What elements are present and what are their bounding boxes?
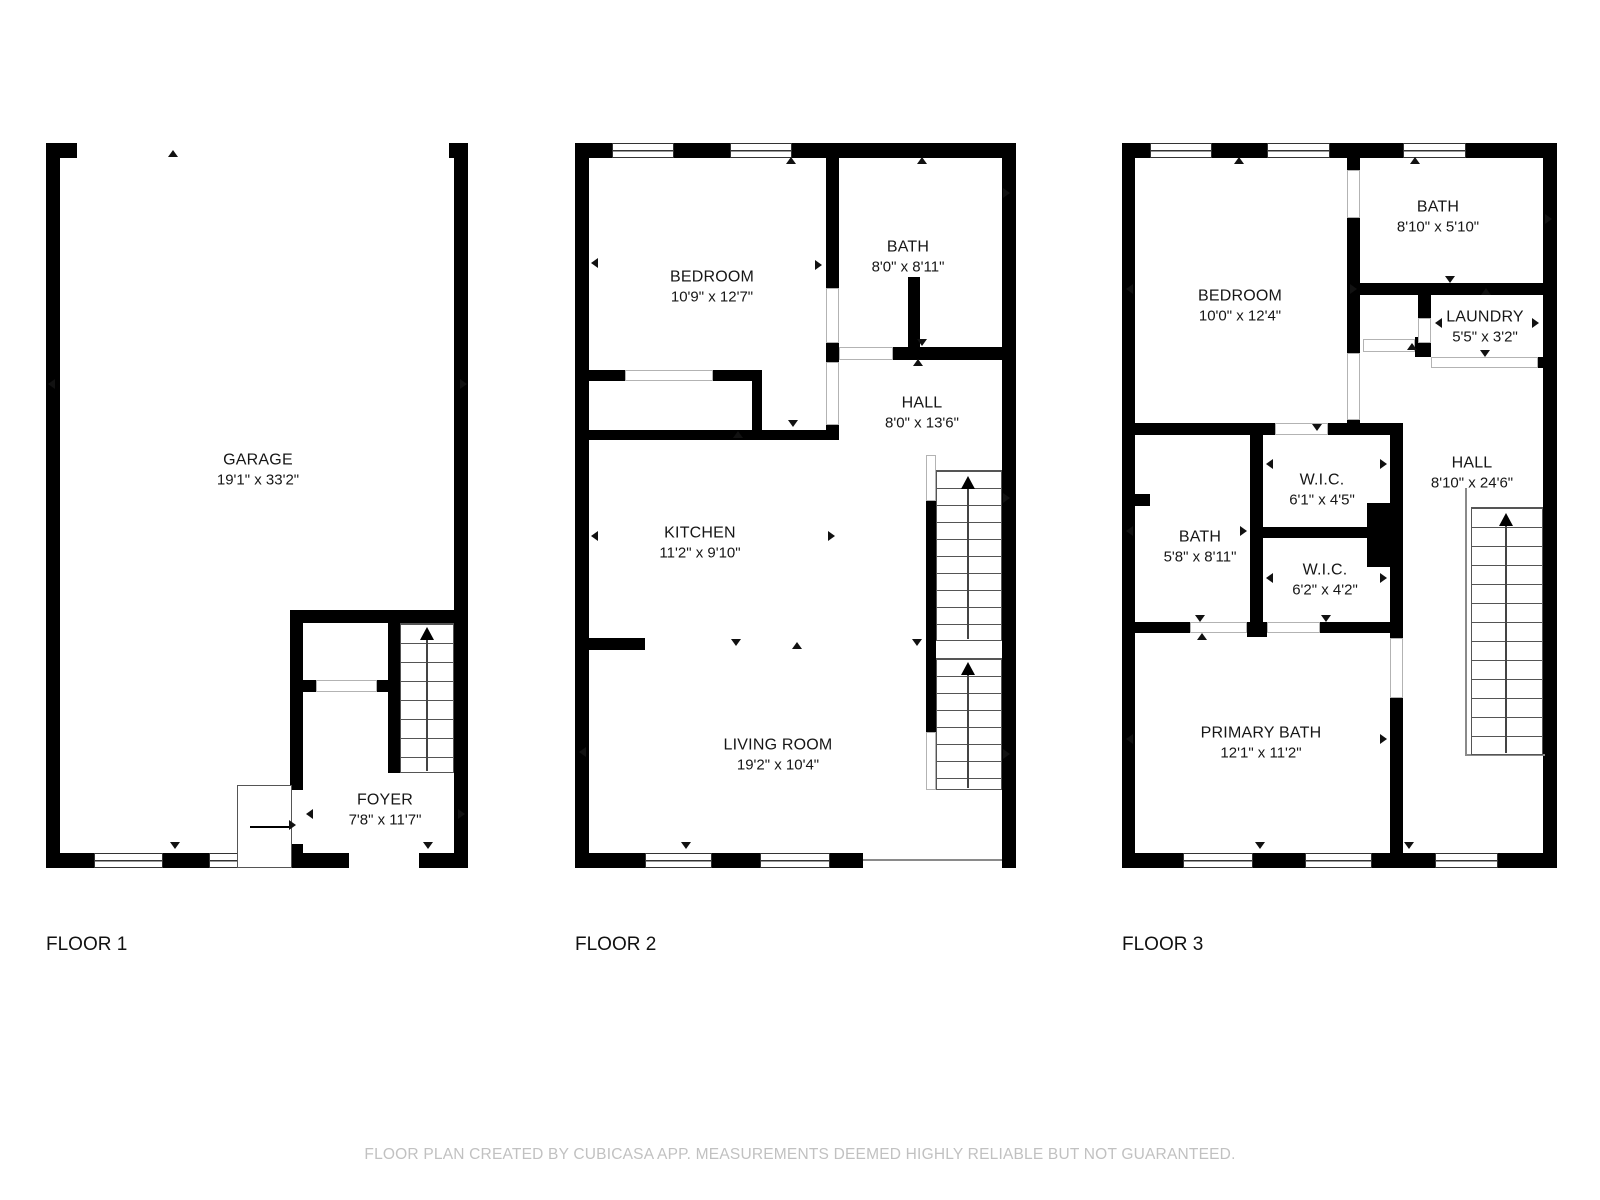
floor-3-label: FLOOR 3 xyxy=(1122,934,1203,956)
wall xyxy=(712,853,760,868)
measure-arrow xyxy=(1410,157,1420,164)
wall xyxy=(449,143,468,158)
measure-arrow xyxy=(1404,842,1414,849)
staircase-center-line xyxy=(426,637,428,771)
room-dims: 11'2" x 9'10" xyxy=(659,545,740,562)
measure-arrow xyxy=(170,842,180,849)
wall xyxy=(1122,143,1150,158)
staircase-center-line xyxy=(967,486,969,639)
wall xyxy=(1390,698,1403,853)
door-opening xyxy=(826,362,839,425)
measure-arrow xyxy=(1445,276,1455,283)
wall xyxy=(1320,622,1403,633)
wall xyxy=(46,853,94,868)
window xyxy=(612,143,674,158)
door-opening xyxy=(316,680,377,692)
room-label-foyer: FOYER7'8" x 11'7" xyxy=(349,792,422,829)
room-name: HALL xyxy=(1431,455,1513,473)
room-label-living-room: LIVING ROOM19'2" x 10'4" xyxy=(724,737,833,774)
staircase-up-arrow xyxy=(961,662,975,675)
door-opening xyxy=(1267,622,1320,633)
measure-arrow xyxy=(1003,749,1010,759)
measure-arrow xyxy=(1545,214,1552,224)
door-opening xyxy=(1347,170,1360,218)
measure-arrow xyxy=(1197,633,1207,640)
measure-arrow xyxy=(917,339,927,346)
window xyxy=(645,853,712,868)
wall xyxy=(752,381,762,430)
wall xyxy=(303,680,316,692)
room-label-bath-f3: BATH5'8" x 8'11" xyxy=(1164,529,1237,566)
room-dims: 10'9" x 12'7" xyxy=(670,289,754,306)
room-name: GARAGE xyxy=(217,452,299,470)
door-opening xyxy=(625,370,713,381)
window xyxy=(1150,143,1212,158)
room-dims: 5'5" x 3'2" xyxy=(1446,329,1524,346)
wall xyxy=(1253,853,1305,868)
staircase-center-line xyxy=(1505,523,1507,753)
measure-arrow xyxy=(423,842,433,849)
wall xyxy=(575,853,645,868)
staircase-treads xyxy=(936,470,1002,641)
room-dims: 6'1" x 4'5" xyxy=(1289,492,1355,509)
measure-arrow xyxy=(828,531,835,541)
wall xyxy=(1135,494,1150,506)
room-dims: 8'0" x 13'6" xyxy=(885,415,959,432)
staircase-up-arrow xyxy=(1499,513,1513,526)
wall xyxy=(1263,527,1367,538)
room-label-bedroom-f2: BEDROOM10'9" x 12'7" xyxy=(670,269,754,306)
wall xyxy=(1543,143,1557,868)
wall xyxy=(163,853,209,868)
measure-arrow xyxy=(1480,350,1490,357)
window xyxy=(730,143,792,158)
wall xyxy=(290,610,468,623)
wall xyxy=(1372,853,1435,868)
wall xyxy=(1002,143,1016,868)
floor-plan-canvas: GARAGE19'1" x 33'2" FOYER7'8" x 11'7" BE… xyxy=(0,0,1600,1200)
wall xyxy=(713,370,762,381)
measure-arrow xyxy=(1380,459,1387,469)
door-opening xyxy=(926,732,936,790)
room-label-hall-f3: HALL8'10" x 24'6" xyxy=(1431,455,1513,492)
measure-arrow xyxy=(306,809,313,819)
measure-arrow xyxy=(591,258,598,268)
wall xyxy=(926,500,936,733)
window xyxy=(760,853,830,868)
room-dims: 19'2" x 10'4" xyxy=(724,757,833,774)
wall xyxy=(1328,423,1403,435)
measure-arrow xyxy=(1380,573,1387,583)
door-opening xyxy=(1390,638,1403,698)
wall xyxy=(1122,622,1190,633)
room-name: FOYER xyxy=(349,792,422,810)
measure-arrow xyxy=(1240,526,1247,536)
staircase-treads xyxy=(936,658,1002,790)
measure-arrow xyxy=(460,379,467,389)
measure-arrow xyxy=(1195,615,1205,622)
wall xyxy=(1122,423,1275,435)
room-name: BEDROOM xyxy=(1198,288,1282,306)
room-label-kitchen: KITCHEN11'2" x 9'10" xyxy=(659,525,740,562)
measure-arrow xyxy=(1407,343,1417,350)
measure-arrow xyxy=(1126,734,1133,744)
measure-arrow xyxy=(733,431,743,438)
wall xyxy=(1347,337,1360,353)
measure-arrow xyxy=(1350,284,1357,294)
wall xyxy=(589,370,625,381)
wall xyxy=(1122,853,1183,868)
measure-arrow xyxy=(579,747,586,757)
wall xyxy=(1367,503,1403,567)
measure-arrow xyxy=(1266,573,1273,583)
wall xyxy=(1538,357,1548,368)
wall xyxy=(1418,295,1431,318)
room-label-bedroom-f3: BEDROOM10'0" x 12'4" xyxy=(1198,288,1282,325)
thin-line xyxy=(1465,488,1467,756)
window xyxy=(94,853,163,868)
measure-arrow xyxy=(792,642,802,649)
floor-2-label: FLOOR 2 xyxy=(575,934,656,956)
wall xyxy=(1330,143,1403,158)
room-label-garage: GARAGE19'1" x 33'2" xyxy=(217,452,299,489)
measure-arrow xyxy=(1312,424,1322,431)
wall xyxy=(589,430,839,440)
wall xyxy=(454,143,468,868)
staircase-up-arrow xyxy=(961,476,975,489)
wall xyxy=(1250,435,1263,633)
window xyxy=(1435,853,1498,868)
wall xyxy=(792,143,1002,158)
wall xyxy=(1498,853,1557,868)
wall xyxy=(1466,143,1557,158)
wall xyxy=(893,347,1002,360)
room-dims: 10'0" x 12'4" xyxy=(1198,308,1282,325)
wall xyxy=(826,343,839,362)
wall xyxy=(1212,143,1267,158)
window xyxy=(1305,853,1372,868)
door-opening xyxy=(1431,357,1538,368)
room-label-laundry: LAUNDRY5'5" x 3'2" xyxy=(1446,309,1524,346)
room-name: BEDROOM xyxy=(670,269,754,287)
entry-arrow-head xyxy=(289,820,296,830)
door-opening xyxy=(926,455,936,501)
disclaimer-text: FLOOR PLAN CREATED BY CUBICASA APP. MEAS… xyxy=(24,1146,1576,1164)
room-dims: 8'10" x 5'10" xyxy=(1397,219,1479,236)
measure-arrow xyxy=(912,639,922,646)
door-opening xyxy=(1347,353,1360,420)
room-name: PRIMARY BATH xyxy=(1201,725,1322,743)
room-dims: 8'10" x 24'6" xyxy=(1431,475,1513,492)
wall xyxy=(1247,622,1267,637)
room-name: W.I.C. xyxy=(1289,472,1355,490)
room-name: LIVING ROOM xyxy=(724,737,833,755)
wall xyxy=(830,853,863,868)
room-dims: 7'8" x 11'7" xyxy=(349,812,422,829)
measure-arrow xyxy=(48,379,55,389)
measure-arrow xyxy=(1234,157,1244,164)
wall xyxy=(388,623,400,773)
window xyxy=(1183,853,1253,868)
door-opening xyxy=(839,347,893,360)
measure-arrow xyxy=(1380,734,1387,744)
staircase-center-line xyxy=(967,672,969,788)
floor-1-label: FLOOR 1 xyxy=(46,934,127,956)
staircase-treads xyxy=(1471,507,1543,755)
wall xyxy=(377,680,393,692)
window xyxy=(1403,143,1466,158)
room-label-bath-f2: BATH8'0" x 8'11" xyxy=(872,239,945,276)
room-name: BATH xyxy=(872,239,945,257)
measure-arrow xyxy=(1321,615,1331,622)
room-label-primary-bath: PRIMARY BATH12'1" x 11'2" xyxy=(1201,725,1322,762)
wall xyxy=(1347,283,1557,295)
wall xyxy=(1122,143,1135,868)
wall xyxy=(575,143,589,868)
measure-arrow xyxy=(681,842,691,849)
measure-arrow xyxy=(917,157,927,164)
wall xyxy=(908,277,920,347)
wall xyxy=(1347,218,1360,337)
staircase-up-arrow xyxy=(420,627,434,640)
door-opening xyxy=(1418,318,1431,343)
room-dims: 12'1" x 11'2" xyxy=(1201,745,1322,762)
room-name: LAUNDRY xyxy=(1446,309,1524,327)
wall xyxy=(1347,158,1360,170)
room-dims: 19'1" x 33'2" xyxy=(217,472,299,489)
room-label-hall-f2: HALL8'0" x 13'6" xyxy=(885,395,959,432)
wall xyxy=(46,143,60,868)
room-dims: 6'2" x 4'2" xyxy=(1292,582,1358,599)
wall xyxy=(575,143,612,158)
room-name: HALL xyxy=(885,395,959,413)
measure-arrow xyxy=(1532,318,1539,328)
wall xyxy=(589,638,645,650)
measure-arrow xyxy=(786,157,796,164)
room-label-wic-2: W.I.C.6'2" x 4'2" xyxy=(1292,562,1358,599)
wall xyxy=(290,623,303,790)
measure-arrow xyxy=(1266,459,1273,469)
measure-arrow xyxy=(1126,284,1133,294)
measure-arrow xyxy=(458,809,465,819)
measure-arrow xyxy=(168,150,178,157)
room-name: KITCHEN xyxy=(659,525,740,543)
thin-line xyxy=(863,859,1002,861)
wall xyxy=(1390,435,1403,503)
room-name: BATH xyxy=(1164,529,1237,547)
room-dims: 8'0" x 8'11" xyxy=(872,259,945,276)
measure-arrow xyxy=(731,639,741,646)
measure-arrow xyxy=(1003,188,1010,198)
measure-arrow xyxy=(815,260,822,270)
wall xyxy=(46,143,77,158)
wall xyxy=(826,158,839,288)
measure-arrow xyxy=(591,531,598,541)
measure-arrow xyxy=(788,420,798,427)
wall xyxy=(674,143,730,158)
measure-arrow xyxy=(913,359,923,366)
room-label-bath-top-f3: BATH8'10" x 5'10" xyxy=(1397,199,1479,236)
measure-arrow xyxy=(1126,526,1133,536)
door-opening xyxy=(1190,622,1247,633)
room-label-wic-1: W.I.C.6'1" x 4'5" xyxy=(1289,472,1355,509)
room-name: W.I.C. xyxy=(1292,562,1358,580)
measure-arrow xyxy=(1255,842,1265,849)
room-name: BATH xyxy=(1397,199,1479,217)
door-opening xyxy=(826,288,839,343)
entry-arrow-stem xyxy=(250,826,290,828)
room-dims: 5'8" x 8'11" xyxy=(1164,549,1237,566)
wall xyxy=(419,853,468,868)
measure-arrow xyxy=(1003,493,1010,503)
window xyxy=(1267,143,1330,158)
measure-arrow xyxy=(1435,318,1442,328)
measure-arrow xyxy=(1481,288,1491,295)
